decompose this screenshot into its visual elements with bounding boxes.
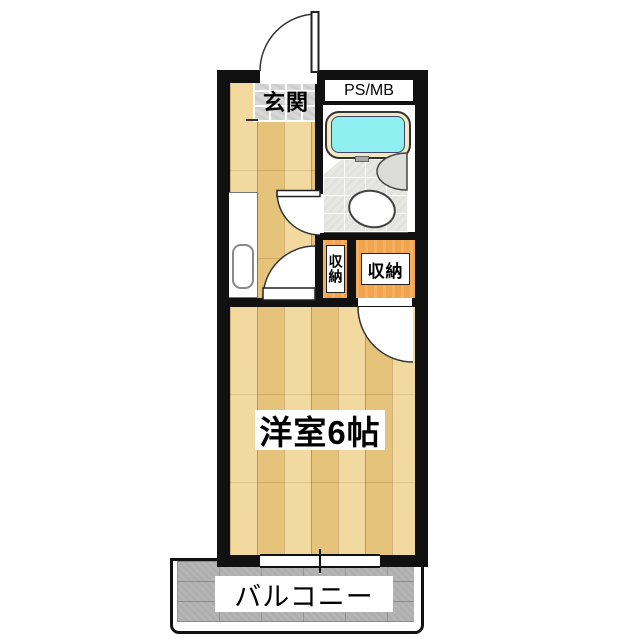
floor-plan: バルコニー PS/MB bbox=[0, 0, 640, 640]
entrance-door-arc bbox=[260, 14, 316, 71]
main-room-label: 洋室6帖 bbox=[255, 410, 385, 450]
genkan-label: 玄関 bbox=[260, 86, 312, 116]
bathroom-door-opening bbox=[314, 194, 324, 233]
entrance-door-panel bbox=[312, 12, 319, 72]
kitchen-sink bbox=[232, 244, 254, 289]
entrance-opening bbox=[260, 68, 317, 84]
sliding-window bbox=[260, 554, 380, 568]
closet-left-label: 収納 bbox=[326, 245, 345, 293]
ps-mb-box: PS/MB bbox=[323, 78, 415, 103]
bathtub-drain bbox=[355, 156, 369, 162]
closet-right-label: 収納 bbox=[361, 253, 410, 285]
ps-mb-label: PS/MB bbox=[344, 82, 394, 100]
bathtub-water bbox=[331, 116, 405, 153]
balcony-label: バルコニー bbox=[215, 576, 393, 612]
closet-door-opening bbox=[358, 298, 412, 306]
bathroom-floor bbox=[323, 158, 408, 233]
